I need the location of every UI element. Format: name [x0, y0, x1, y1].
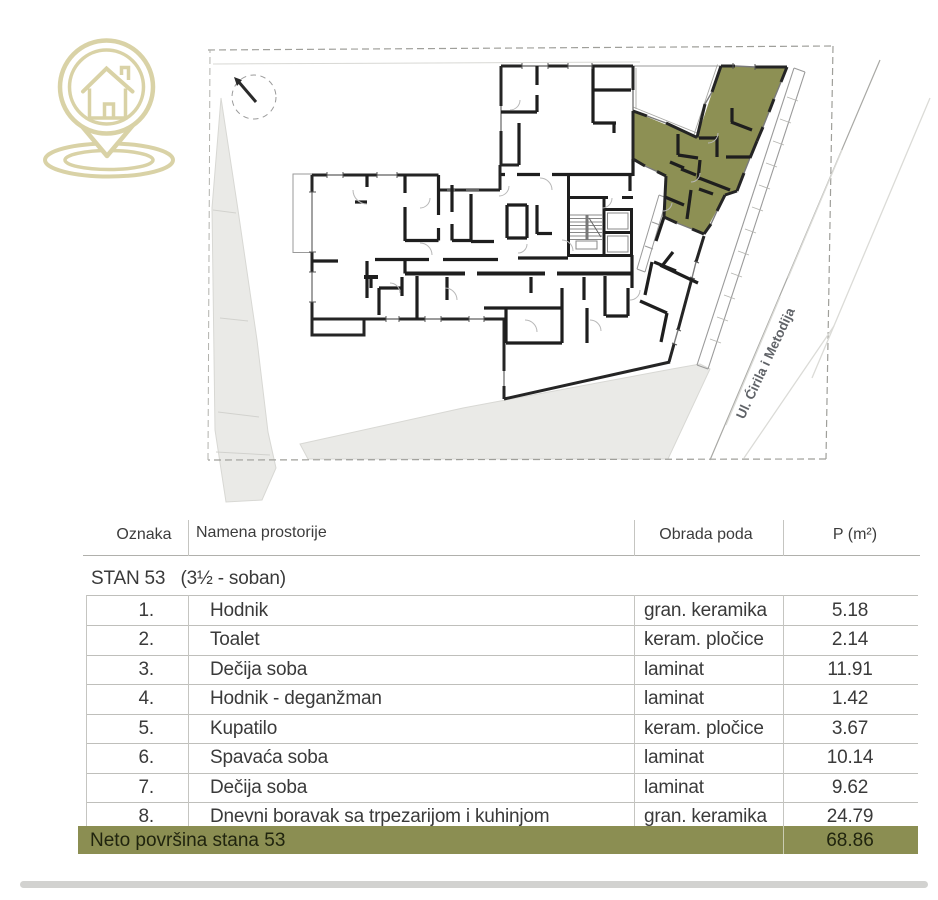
svg-text:Ul. Ćirila i Metodija: Ul. Ćirila i Metodija: [733, 305, 798, 421]
